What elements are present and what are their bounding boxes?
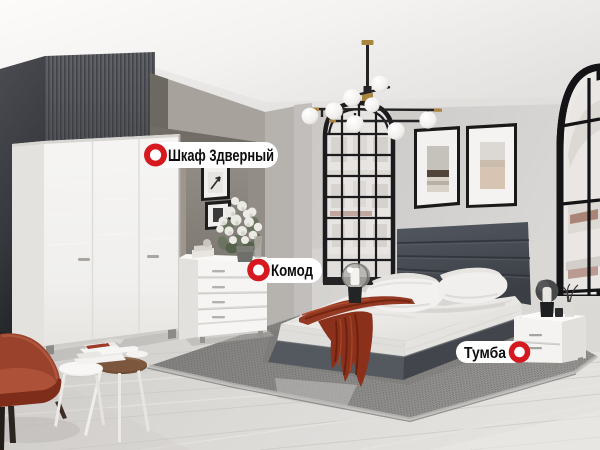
svg-text:Шкаф 3дверный: Шкаф 3дверный <box>168 147 274 165</box>
svg-text:Тумба: Тумба <box>464 345 506 362</box>
svg-text:Комод: Комод <box>271 262 313 280</box>
